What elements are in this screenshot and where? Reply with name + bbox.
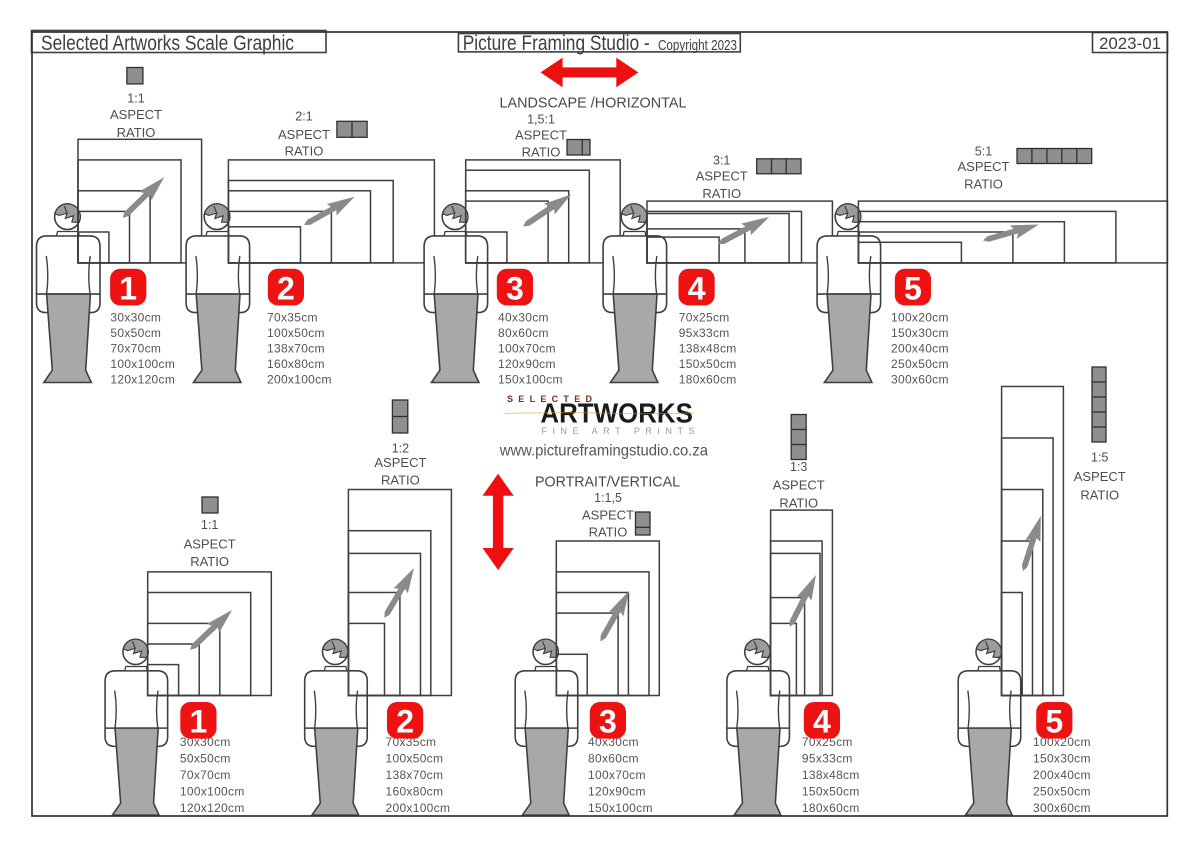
svg-text:ASPECT: ASPECT bbox=[957, 159, 1009, 174]
svg-text:RATIO: RATIO bbox=[779, 496, 818, 511]
svg-text:www.pictureframingstudio.co.za: www.pictureframingstudio.co.za bbox=[499, 443, 708, 460]
svg-text:Picture Framing Studio -: Picture Framing Studio - bbox=[463, 32, 650, 55]
svg-text:200x100cm: 200x100cm bbox=[267, 372, 332, 386]
svg-text:3:1: 3:1 bbox=[713, 154, 730, 168]
svg-text:30x30cm: 30x30cm bbox=[110, 310, 161, 324]
svg-text:ASPECT: ASPECT bbox=[110, 107, 162, 122]
svg-text:2: 2 bbox=[396, 704, 414, 740]
svg-text:150x100cm: 150x100cm bbox=[588, 801, 653, 815]
svg-text:70x25cm: 70x25cm bbox=[679, 310, 730, 324]
svg-text:RATIO: RATIO bbox=[285, 144, 324, 159]
svg-text:1:1: 1:1 bbox=[127, 92, 144, 106]
svg-text:ASPECT: ASPECT bbox=[1074, 469, 1126, 484]
svg-text:ASPECT: ASPECT bbox=[184, 537, 236, 552]
svg-text:3: 3 bbox=[506, 270, 524, 306]
svg-text:RATIO: RATIO bbox=[522, 145, 561, 160]
svg-text:200x100cm: 200x100cm bbox=[386, 801, 451, 815]
svg-text:5:1: 5:1 bbox=[975, 144, 992, 158]
svg-text:80x60cm: 80x60cm bbox=[588, 752, 639, 766]
svg-text:1:1: 1:1 bbox=[201, 518, 218, 532]
svg-text:ASPECT: ASPECT bbox=[374, 455, 426, 470]
svg-text:1:3: 1:3 bbox=[790, 460, 807, 474]
svg-text:150x30cm: 150x30cm bbox=[1033, 752, 1091, 766]
svg-text:138x48cm: 138x48cm bbox=[802, 768, 860, 782]
svg-text:80x60cm: 80x60cm bbox=[498, 326, 549, 340]
svg-text:138x48cm: 138x48cm bbox=[679, 341, 737, 355]
svg-text:100x20cm: 100x20cm bbox=[891, 310, 949, 324]
svg-text:1,5:1: 1,5:1 bbox=[527, 113, 555, 127]
svg-text:RATIO: RATIO bbox=[1080, 487, 1119, 502]
svg-text:LANDSCAPE /HORIZONTAL: LANDSCAPE /HORIZONTAL bbox=[500, 95, 687, 111]
svg-text:120x120cm: 120x120cm bbox=[110, 372, 175, 386]
svg-text:300x60cm: 300x60cm bbox=[1033, 801, 1091, 815]
svg-text:138x70cm: 138x70cm bbox=[386, 768, 444, 782]
svg-text:95x33cm: 95x33cm bbox=[679, 326, 730, 340]
svg-text:1:1,5: 1:1,5 bbox=[594, 491, 622, 505]
svg-text:120x90cm: 120x90cm bbox=[588, 785, 646, 799]
svg-text:200x40cm: 200x40cm bbox=[1033, 768, 1091, 782]
svg-text:50x50cm: 50x50cm bbox=[180, 752, 231, 766]
svg-text:95x33cm: 95x33cm bbox=[802, 752, 853, 766]
svg-text:120x120cm: 120x120cm bbox=[180, 801, 245, 815]
svg-text:1:5: 1:5 bbox=[1091, 450, 1108, 464]
svg-text:2:1: 2:1 bbox=[295, 110, 312, 124]
svg-text:180x60cm: 180x60cm bbox=[679, 372, 737, 386]
svg-text:2: 2 bbox=[277, 270, 295, 306]
svg-text:FINE ART PRINTS: FINE ART PRINTS bbox=[542, 426, 695, 436]
svg-text:RATIO: RATIO bbox=[589, 524, 628, 539]
svg-text:100x50cm: 100x50cm bbox=[386, 752, 444, 766]
svg-text:100x70cm: 100x70cm bbox=[498, 341, 556, 355]
svg-text:50x50cm: 50x50cm bbox=[110, 326, 161, 340]
svg-text:100x70cm: 100x70cm bbox=[588, 768, 646, 782]
svg-text:PORTRAIT/VERTICAL: PORTRAIT/VERTICAL bbox=[535, 474, 680, 490]
svg-text:3: 3 bbox=[599, 704, 617, 740]
svg-text:120x90cm: 120x90cm bbox=[498, 357, 556, 371]
svg-text:1: 1 bbox=[190, 704, 208, 740]
svg-text:ASPECT: ASPECT bbox=[278, 127, 330, 142]
svg-text:RATIO: RATIO bbox=[964, 177, 1003, 192]
svg-text:RATIO: RATIO bbox=[702, 186, 741, 201]
svg-text:4: 4 bbox=[813, 704, 831, 740]
svg-text:40x30cm: 40x30cm bbox=[498, 310, 549, 324]
svg-text:200x40cm: 200x40cm bbox=[891, 341, 949, 355]
svg-text:RATIO: RATIO bbox=[190, 554, 229, 569]
svg-text:5: 5 bbox=[1045, 704, 1063, 740]
svg-text:150x50cm: 150x50cm bbox=[679, 357, 737, 371]
svg-text:150x30cm: 150x30cm bbox=[891, 326, 949, 340]
svg-text:100x50cm: 100x50cm bbox=[267, 326, 325, 340]
svg-text:RATIO: RATIO bbox=[117, 125, 156, 140]
svg-text:ASPECT: ASPECT bbox=[696, 169, 748, 184]
svg-text:70x70cm: 70x70cm bbox=[180, 768, 231, 782]
svg-text:4: 4 bbox=[688, 270, 706, 306]
svg-text:2023-01: 2023-01 bbox=[1099, 35, 1161, 53]
svg-text:Copyright 2023: Copyright 2023 bbox=[658, 37, 737, 54]
svg-text:250x50cm: 250x50cm bbox=[891, 357, 949, 371]
svg-text:160x80cm: 160x80cm bbox=[267, 357, 325, 371]
svg-text:180x60cm: 180x60cm bbox=[802, 801, 860, 815]
svg-text:250x50cm: 250x50cm bbox=[1033, 785, 1091, 799]
svg-text:70x35cm: 70x35cm bbox=[267, 310, 318, 324]
svg-text:100x100cm: 100x100cm bbox=[180, 785, 245, 799]
svg-text:ASPECT: ASPECT bbox=[582, 508, 634, 523]
svg-text:150x50cm: 150x50cm bbox=[802, 785, 860, 799]
svg-text:1:2: 1:2 bbox=[392, 442, 409, 456]
svg-text:ASPECT: ASPECT bbox=[515, 128, 567, 143]
svg-text:RATIO: RATIO bbox=[381, 472, 420, 487]
svg-text:160x80cm: 160x80cm bbox=[386, 785, 444, 799]
svg-text:Selected Artworks Scale Graphi: Selected Artworks Scale Graphic bbox=[41, 32, 294, 55]
svg-text:138x70cm: 138x70cm bbox=[267, 341, 325, 355]
svg-text:300x60cm: 300x60cm bbox=[891, 372, 949, 386]
svg-text:150x100cm: 150x100cm bbox=[498, 372, 563, 386]
svg-text:5: 5 bbox=[904, 270, 922, 306]
svg-text:1: 1 bbox=[119, 270, 137, 306]
svg-text:70x70cm: 70x70cm bbox=[110, 341, 161, 355]
svg-text:ASPECT: ASPECT bbox=[773, 478, 825, 493]
svg-text:100x100cm: 100x100cm bbox=[110, 357, 175, 371]
